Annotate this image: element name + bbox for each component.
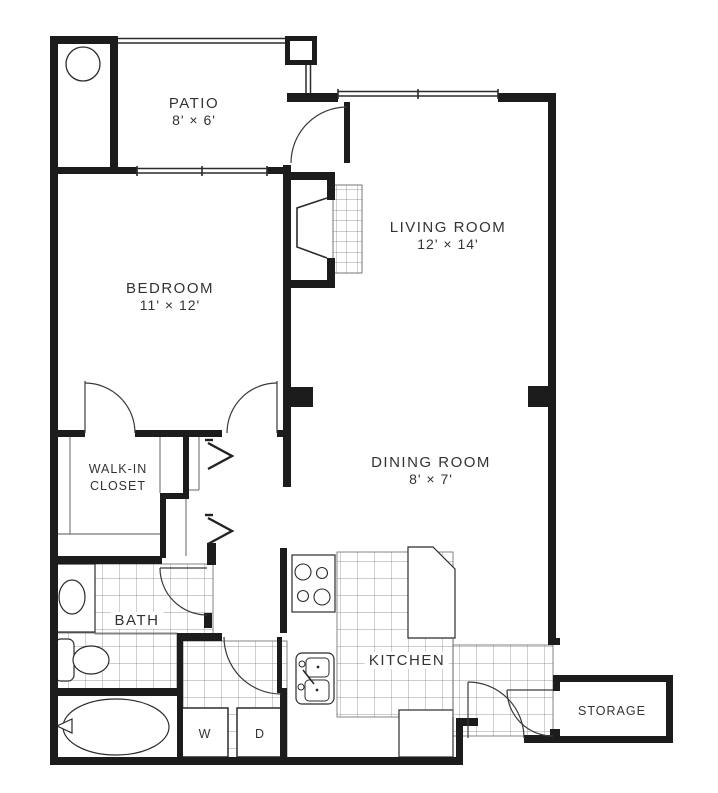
wall-storage-right <box>666 675 673 743</box>
patio-railing <box>118 39 311 94</box>
patio-door-arc <box>291 107 347 163</box>
floor-plan: PATIO 8' × 6' LIVING ROOM 12' × 14' BEDR… <box>0 0 718 793</box>
wall-living-north-b <box>498 93 556 102</box>
wall-storage-left-a <box>553 682 560 691</box>
wall-living-north-a <box>287 93 338 102</box>
wall-bath-east <box>177 633 183 758</box>
room-label-bath: BATH <box>111 612 164 629</box>
dryer-label: D <box>255 726 265 743</box>
kitchen-sink <box>296 653 334 704</box>
wall-storage-top <box>553 675 673 682</box>
wall-kitchen-west-upper <box>280 548 287 633</box>
bedroom-window <box>137 166 267 176</box>
fireplace <box>297 198 327 258</box>
wall-bedroom-south-c <box>277 430 291 437</box>
room-label-patio: PATIO 8' × 6' <box>169 95 219 128</box>
closet-name-line1: WALK-IN <box>89 461 148 478</box>
wall-patio-door-jamb <box>344 102 350 163</box>
wall-entry-stub <box>456 718 478 726</box>
wall-kitchen-west-lower <box>280 688 287 758</box>
patio-column <box>288 39 315 63</box>
wall-fireplace-top <box>287 172 335 180</box>
tile-grid-hearth <box>333 185 362 273</box>
wall-bedroom-south-b <box>135 430 222 437</box>
patio-dims: 8' × 6' <box>169 112 219 128</box>
wall-closet-partition-c <box>160 499 166 558</box>
room-label-kitchen: KITCHEN <box>365 652 449 669</box>
wall-closet-top <box>50 36 118 44</box>
closet-name-line2: CLOSET <box>89 478 148 495</box>
chevron-door-symbol-lower <box>205 515 232 544</box>
wall-bedroom-north-a <box>50 167 137 174</box>
stove <box>292 555 335 612</box>
wall-closet-left <box>50 36 58 174</box>
bedroom-name: BEDROOM <box>126 280 214 297</box>
wall-outer-left <box>50 167 58 765</box>
bedroom-dims: 11' × 12' <box>126 297 214 313</box>
wall-fireplace-jamb-top <box>327 180 335 200</box>
wall-outer-south <box>50 757 463 765</box>
storage-name: STORAGE <box>578 703 646 720</box>
washer-label: W <box>199 726 212 743</box>
room-label-living: LIVING ROOM 12' × 14' <box>390 219 507 252</box>
wall-east-stub <box>548 638 560 645</box>
wall-tub-alcove <box>50 688 177 696</box>
living-room-window <box>338 89 498 99</box>
water-heater <box>66 47 100 81</box>
room-label-bedroom: BEDROOM 11' × 12' <box>126 280 214 313</box>
wall-laundry-north <box>177 633 222 641</box>
dining-name: DINING ROOM <box>371 454 491 471</box>
bedroom-door-left <box>85 381 135 433</box>
room-label-storage: STORAGE <box>578 703 646 720</box>
living-name: LIVING ROOM <box>390 219 507 236</box>
kitchen-name: KITCHEN <box>365 652 449 669</box>
chevron-door-symbol-upper <box>205 440 232 469</box>
wall-fireplace-jamb-bottom <box>327 258 335 280</box>
column-left <box>288 387 313 407</box>
floor-plan-drawing <box>0 0 718 793</box>
bathtub <box>56 696 177 757</box>
wall-fireplace-bottom <box>287 280 335 288</box>
room-label-dining: DINING ROOM 8' × 7' <box>371 454 491 487</box>
wall-dining-west <box>283 437 291 487</box>
bath-name: BATH <box>111 612 164 629</box>
wall-bath-door-jamb <box>207 543 216 565</box>
wall-entry-step <box>456 720 463 765</box>
wall-bedroom-south-a <box>50 430 85 437</box>
bedroom-door-right <box>227 381 277 433</box>
wall-bath-north <box>50 556 162 564</box>
patio-name: PATIO <box>169 95 219 112</box>
column-right <box>528 386 552 407</box>
wall-storage-bottom <box>553 736 673 743</box>
living-dims: 12' × 14' <box>390 236 507 252</box>
wall-closet-partition-b <box>160 493 189 499</box>
room-label-closet: WALK-IN CLOSET <box>89 461 148 495</box>
kitchen-island <box>399 710 453 757</box>
wall-closet-right <box>110 36 118 174</box>
vanity-sink <box>52 564 95 632</box>
wall-outer-east <box>548 93 556 645</box>
wall-closet-partition-a <box>183 437 189 499</box>
laundry-door-leaf <box>277 637 282 693</box>
dining-dims: 8' × 7' <box>371 471 491 487</box>
